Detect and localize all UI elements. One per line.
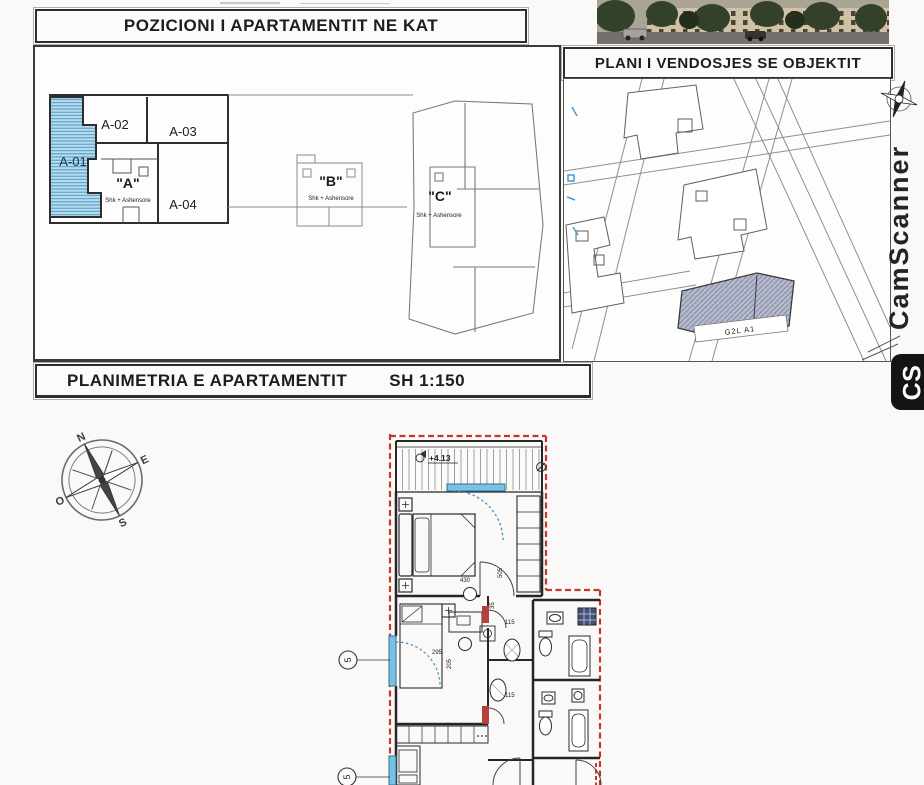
red-wall-mark [482,706,489,724]
apartment-a02-label: A-02 [101,117,128,132]
window-top [447,484,505,491]
dimension-label: 115 [505,620,515,626]
building-photo [597,0,889,44]
camscanner-logo: CS [891,354,924,410]
corridor-and-wcs: 115 115 35 [482,596,533,760]
scan-artifact [220,2,280,4]
axis-marker-label: 5 [342,774,352,779]
kat-floor-plan-drawing: A-01 A-02 A-03 A-04 "A" Shk + Ashensore … [35,47,559,359]
bathrooms [533,600,600,785]
scanned-document-page: POZICIONI I APARTAMENTIT NE KAT [0,0,924,785]
axis-markers: 5 5 [338,651,390,785]
kat-labels: A-01 A-02 A-03 A-04 "A" Shk + Ashensore … [59,117,462,219]
single-bed [400,604,455,688]
site-blue-marks [567,107,578,235]
kat-floor-plan-box: A-01 A-02 A-03 A-04 "A" Shk + Ashensore … [33,45,561,362]
dimension-label: 115 [505,693,515,699]
apartment-floor-plan: +4.13 [328,428,672,785]
apartment-a03-label: A-03 [169,124,196,139]
elevation-label: +4.13 [429,453,451,463]
bedroom-1: 430 505 [396,492,542,601]
dimension-label: 505 [498,567,504,578]
site-north-compass-icon [878,78,920,120]
dimension-label: 295 [432,650,443,656]
core-b-label: "B" [319,173,342,189]
site-panel-title-box: PLANI I VENDOSJES SE OBJEKTIT [563,47,893,79]
compass-s-label: S [117,516,129,530]
red-wall-mark [482,606,489,623]
window-left-lower [389,756,396,785]
dimension-label: 205 [447,658,453,669]
plan-title: PLANIMETRIA E APARTAMENTIT [67,371,347,391]
kat-panel-title-box: POZICIONI I APARTAMENTIT NE KAT [35,9,527,43]
site-panel-title: PLANI I VENDOSJES SE OBJEKTIT [595,55,861,72]
building-photo-strip [597,0,889,44]
plan-title-box: PLANIMETRIA E APARTAMENTIT SH 1:150 [35,364,591,398]
door-swing-blue [396,642,440,686]
apartment-a01-label: A-01 [59,154,86,169]
door-swing [480,562,514,596]
shaft [578,608,596,625]
camscanner-logo-text: CS [898,364,924,400]
compass-rose: N O S E [50,428,154,532]
apartment-a04-label: A-04 [169,197,196,212]
core-c-sublabel: Shk + Ashensore [416,213,462,219]
site-plan-drawing: G2L A1 [564,79,890,361]
compass-e-label: E [139,453,151,467]
bath-2-fixtures [539,689,588,751]
site-plan-box: G2L A1 [563,78,891,362]
core-a-detail [101,159,158,223]
bedroom-2: 295 205 [389,596,495,724]
dimension-label: 430 [460,578,471,584]
door-swing-blue [453,491,503,541]
plan-scale: SH 1:150 [389,371,465,391]
core-a-label: "A" [116,175,139,191]
scan-artifact [300,3,390,4]
core-c-label: "C" [428,188,451,204]
door-swing [493,758,520,785]
section-b-outline [228,95,413,226]
camscanner-watermark-text: CamScanner [884,112,922,362]
door-swing [488,708,504,724]
kat-panel-title: POZICIONI I APARTAMENTIT NE KAT [124,16,438,36]
axis-marker-label: 5 [343,657,353,662]
wardrobe [517,496,540,592]
core-b-sublabel: Shk + Ashensore [308,196,354,202]
core-a-sublabel: Shk + Ashensore [105,198,151,204]
door-swing [488,610,506,628]
column-circle [464,588,477,601]
dimension-label: 35 [490,602,496,609]
kitchen-counter [396,726,488,785]
door-swing [576,760,601,785]
window-left [389,636,396,686]
